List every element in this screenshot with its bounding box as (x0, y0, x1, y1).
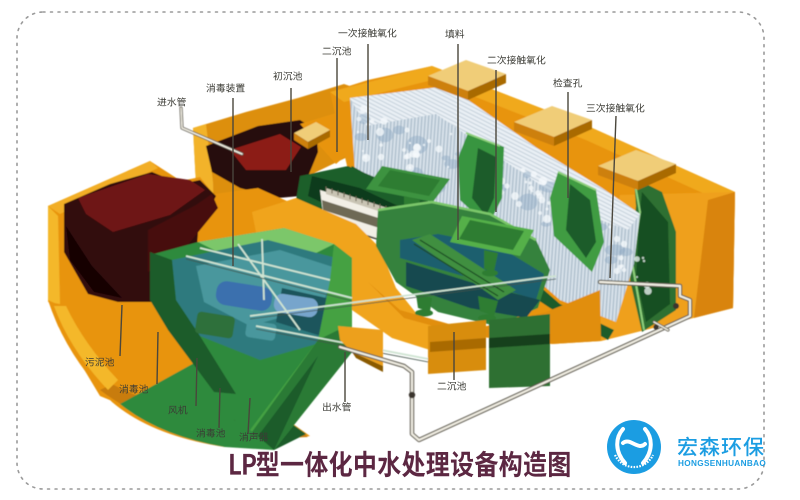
svg-text:HONGSENHUANBAO: HONGSENHUANBAO (678, 459, 766, 468)
